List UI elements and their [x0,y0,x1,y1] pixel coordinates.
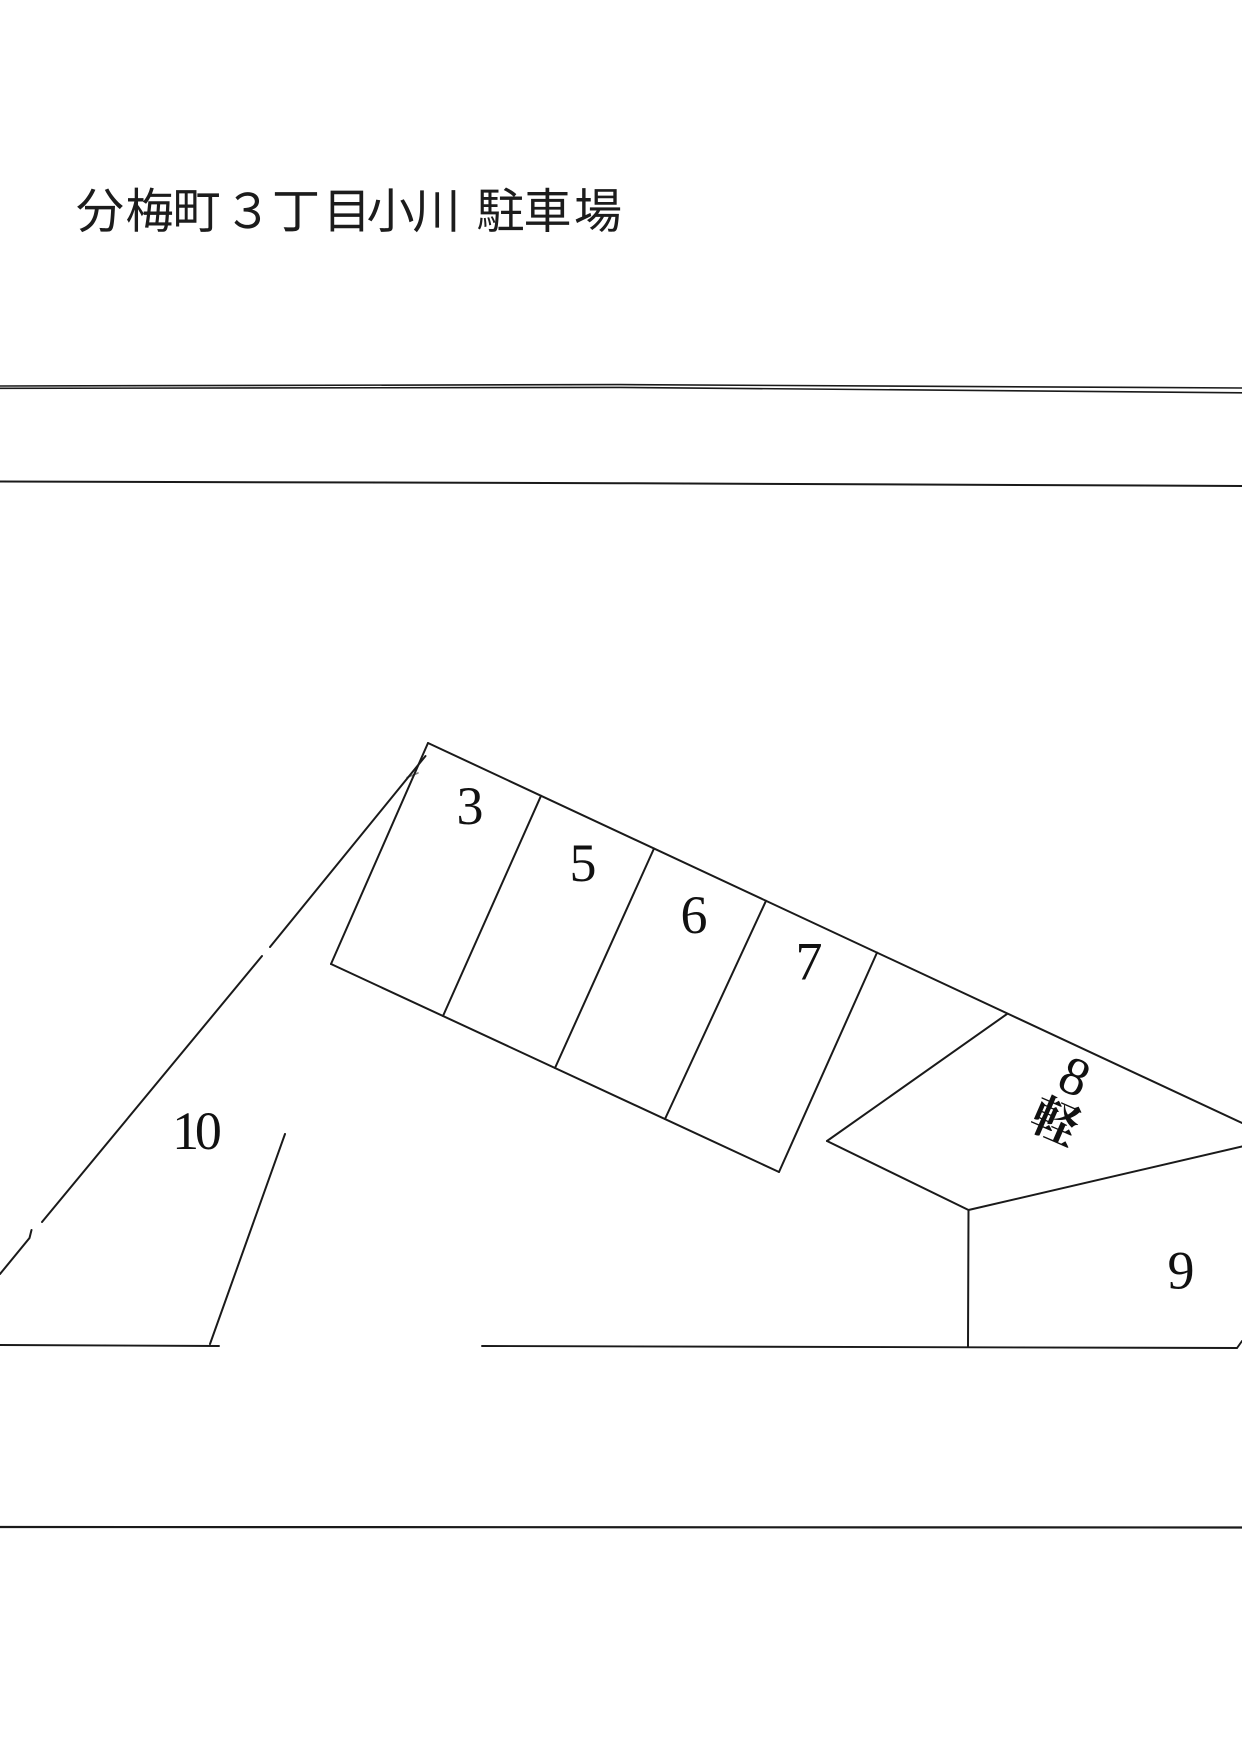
svg-text:9: 9 [1168,1241,1195,1301]
svg-text:5: 5 [570,833,597,893]
svg-text:6: 6 [681,885,708,945]
svg-text:7: 7 [796,932,823,992]
svg-text:0: 0 [195,1101,222,1161]
svg-text:3: 3 [457,776,484,836]
